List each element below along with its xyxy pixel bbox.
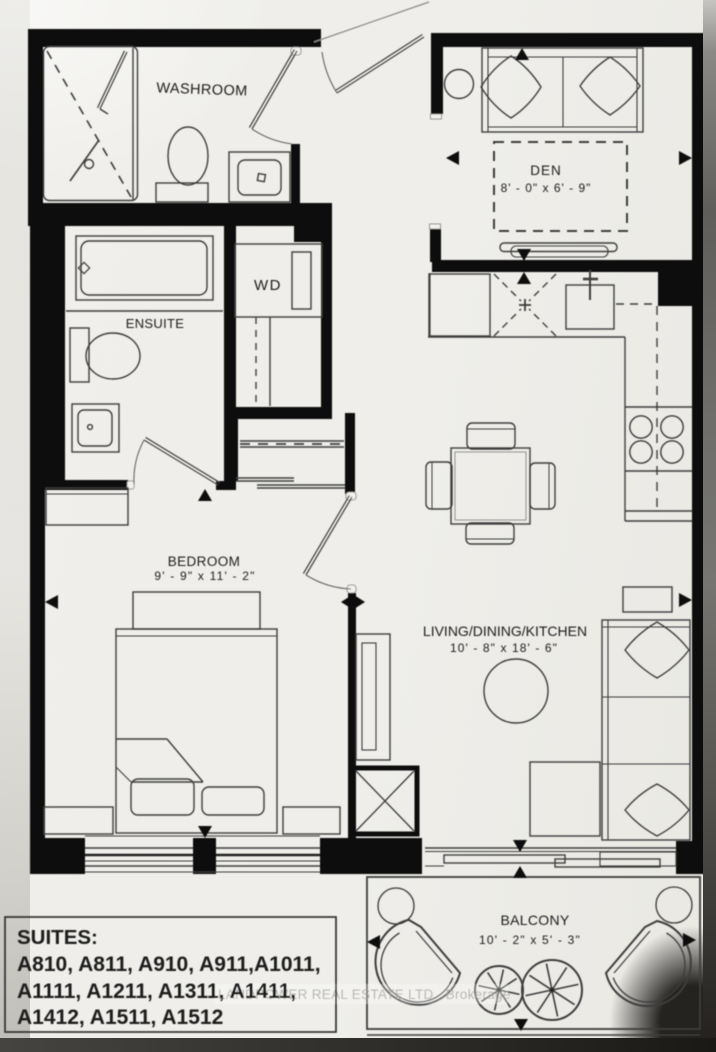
svg-text:A1111, A1211, A1311, A1411,: A1111, A1211, A1311, A1411, — [17, 980, 296, 1003]
svg-text:WD: WD — [254, 277, 282, 294]
svg-text:A1412, A1511, A1512: A1412, A1511, A1512 — [17, 1006, 223, 1029]
svg-text:10' - 2" x 5' - 3": 10' - 2" x 5' - 3" — [479, 933, 581, 947]
svg-text:BEDROOM: BEDROOM — [168, 554, 241, 569]
svg-text:10' - 8" x 18' - 6": 10' - 8" x 18' - 6" — [450, 641, 558, 655]
svg-text:WASHROOM: WASHROOM — [156, 80, 248, 99]
svg-text:ENSUITE: ENSUITE — [126, 316, 184, 331]
svg-text:8' - 0" x 6' - 9": 8' - 0" x 6' - 9" — [501, 181, 592, 195]
svg-text:A810, A811, A910, A911,A1011,: A810, A811, A910, A911,A1011, — [17, 953, 321, 976]
svg-text:9' - 9" x 11' - 2": 9' - 9" x 11' - 2" — [154, 569, 255, 583]
svg-text:LIVING/DINING/KITCHEN: LIVING/DINING/KITCHEN — [423, 623, 587, 639]
svg-text:BALCONY: BALCONY — [500, 912, 569, 928]
svg-text:SUITES:: SUITES: — [17, 926, 98, 949]
svg-text:DEN: DEN — [530, 163, 562, 178]
